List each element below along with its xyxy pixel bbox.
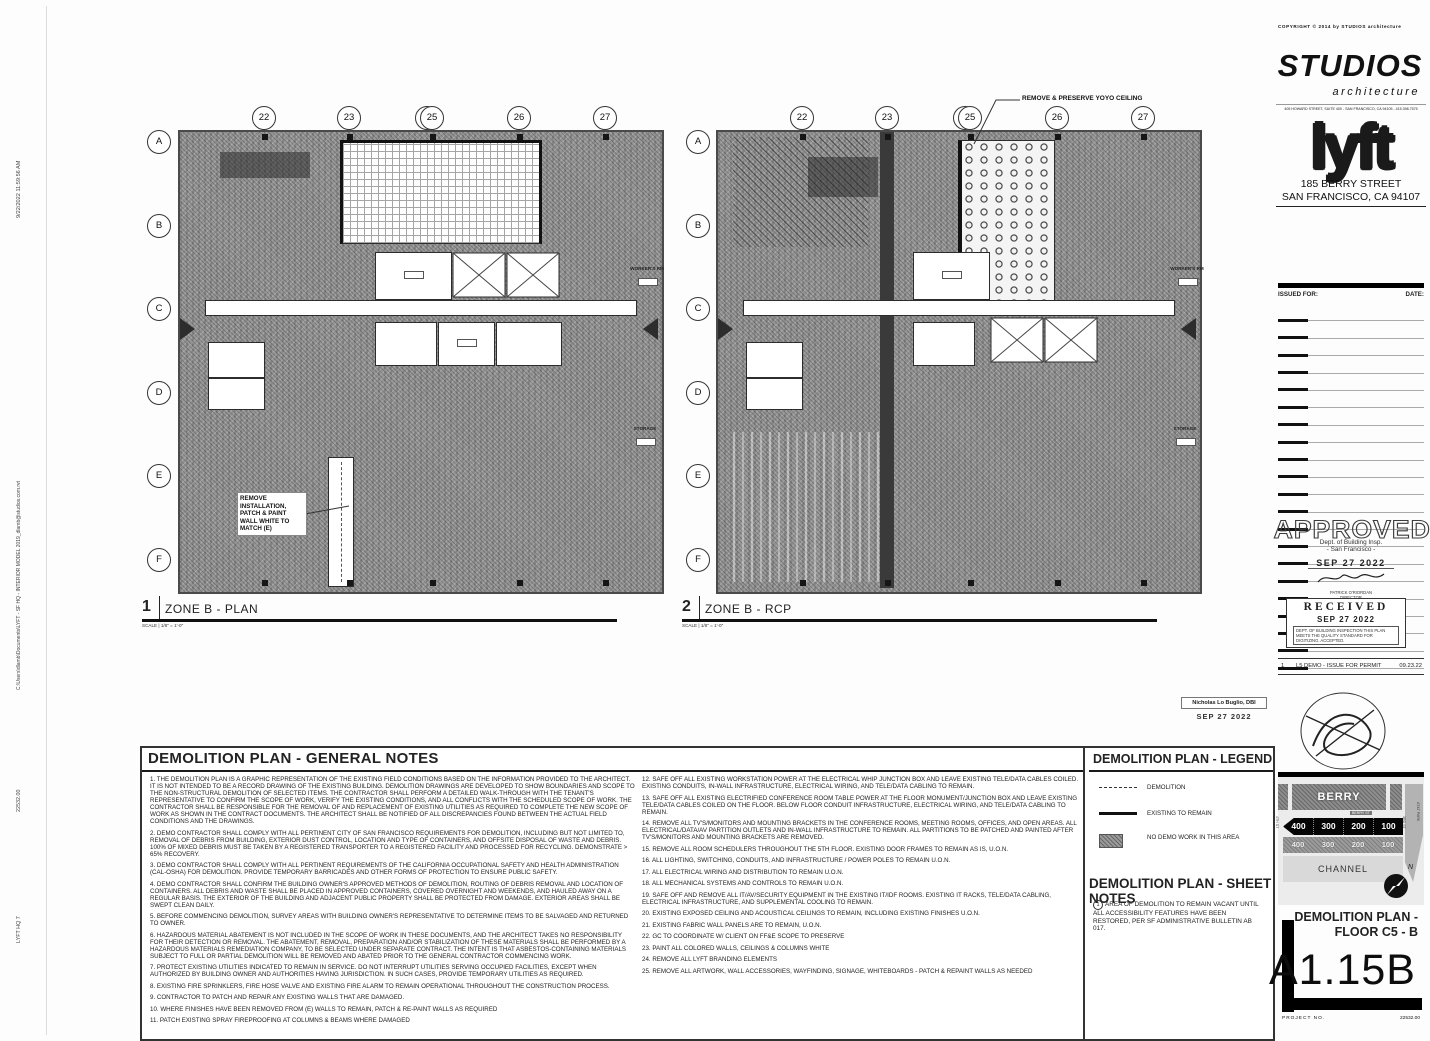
plan-scale: SCALE | 1/8" = 1'-0" [142, 623, 183, 628]
column-dot [1055, 134, 1061, 140]
grid-row-bubble: D [686, 381, 710, 405]
drawing-sheet: 9/22/2022 11:59:56 AM C:\Users\dlamb\Doc… [0, 0, 1430, 1041]
sheet-note-1: 1AREA OF DEMOLITION TO REMAIN VACANT UNT… [1093, 900, 1265, 933]
column-dot [1141, 580, 1147, 586]
block-number: 100 [1373, 818, 1403, 835]
column-dot [800, 134, 806, 140]
solid-line-symbol [1099, 812, 1137, 815]
elevator-bank [452, 252, 560, 298]
project-name-vertical: LYFT HQ 7 [16, 893, 22, 943]
sheet-title-line2: FLOOR C5 - B [1335, 925, 1418, 939]
grid-row-bubble: C [686, 297, 710, 321]
room-tag [404, 271, 424, 279]
column-dot [968, 580, 974, 586]
corridor [205, 300, 637, 316]
column-dot [603, 134, 609, 140]
issued-for-row [1278, 374, 1424, 391]
general-note: 18. ALL MECHANICAL SYSTEMS AND CONTROLS … [642, 880, 1080, 887]
column-dot [347, 134, 353, 140]
plan-dark-area [220, 152, 310, 178]
revision-row: 1 L5 DEMO - ISSUE FOR PERMIT 09.23.22 [1278, 658, 1424, 675]
revision-description: L5 DEMO - ISSUE FOR PERMIT [1296, 659, 1381, 674]
issued-for-header: ISSUED FOR: DATE: [1278, 291, 1424, 298]
lyft-logo: lyft [1276, 112, 1426, 183]
issued-for-label: ISSUED FOR: [1278, 291, 1318, 298]
rule [1089, 770, 1273, 772]
north-label: N [1408, 864, 1413, 871]
plan-number: 2 [682, 598, 691, 616]
side-room [746, 342, 803, 378]
sheet-title-line1: DEMOLITION PLAN - [1294, 910, 1418, 924]
general-note: 2. DEMO CONTRACTOR SHALL COMPLY WITH ALL… [150, 830, 636, 858]
column-dot [262, 134, 268, 140]
room-tag [1178, 278, 1198, 286]
general-note: 14. REMOVE ALL TV'S/MONITORS AND MOUNTIN… [642, 820, 1080, 841]
issued-for-row [1278, 426, 1424, 443]
general-note: 6. HAZARDOUS MATERIAL ABATEMENT IS NOT I… [150, 932, 636, 960]
core-room [496, 322, 562, 366]
block-number: 200 [1343, 837, 1373, 853]
block-number: 300 [1313, 818, 1343, 835]
map-block [1390, 784, 1402, 810]
grid-column-bubble: 22 [790, 106, 814, 130]
legend-title: DEMOLITION PLAN - LEGEND [1093, 752, 1272, 766]
block-number: 100 [1373, 837, 1403, 853]
general-notes-column-2: 12. SAFE OFF ALL EXISTING WORKSTATION PO… [642, 776, 1080, 979]
studios-logo-sub: architecture [1333, 86, 1420, 98]
plan-name: ZONE B - RCP [705, 602, 792, 616]
date-label: DATE: [1406, 291, 1424, 298]
block-number: 400 [1283, 818, 1313, 835]
general-note: 24. REMOVE ALL LYFT BRANDING ELEMENTS [642, 956, 1080, 963]
grid-row-bubble: F [686, 548, 710, 572]
divider [699, 596, 700, 620]
column-dot [347, 580, 353, 586]
general-note: 17. ALL ELECTRICAL WIRING AND DISTRIBUTI… [642, 869, 1080, 876]
grid-column-bubble: 23 [337, 106, 361, 130]
approved-city: - San Francisco - [1278, 546, 1424, 553]
general-note: 7. PROTECT EXISTING UTILITIES INDICATED … [150, 964, 636, 978]
general-note: 21. EXISTING FABRIC WALL PANELS ARE TO R… [642, 922, 1080, 929]
project-address-line2: SAN FRANCISCO, CA 94107 [1276, 191, 1426, 207]
annotation-yoyo-ceiling: REMOVE & PRESERVE YOYO CEILING [1022, 95, 1142, 102]
grid-row-bubble: E [147, 464, 171, 488]
column-dot [1055, 580, 1061, 586]
grid-column-bubble: 26 [507, 106, 531, 130]
grid-row-bubble: D [147, 381, 171, 405]
plan-dark-area [808, 157, 878, 197]
plan-name: ZONE B - PLAN [165, 602, 258, 616]
received-word: RECEIVED [1287, 601, 1405, 613]
core-room [375, 252, 452, 300]
studios-logo: STUDIOS [1276, 48, 1424, 84]
note-number-bubble: 1 [1093, 900, 1103, 910]
room-tag [457, 339, 477, 347]
grid-column-bubble: 27 [1131, 106, 1155, 130]
site-block-row-highlight: 400300200100 [1283, 818, 1403, 835]
grid-row-bubble: B [147, 214, 171, 238]
column-dot [262, 580, 268, 586]
received-date: SEP 27 2022 [1287, 615, 1405, 624]
fourth-st-label: 4TH ST [1275, 816, 1279, 828]
project-address-line1: 185 BERRY STREET [1276, 178, 1426, 190]
general-note: 13. SAFE OFF ALL EXISTING ELECTRIFIED CO… [642, 795, 1080, 816]
side-room [208, 342, 265, 378]
issued-for-row [1278, 356, 1424, 373]
third-st-label: 3RD ST [1402, 816, 1406, 829]
callout-storage: STORAGE [628, 426, 662, 432]
general-notes-title: DEMOLITION PLAN - GENERAL NOTES [148, 750, 439, 767]
site-block-row: 400300200100 [1283, 837, 1403, 853]
column-dot [885, 580, 891, 586]
rcp-plan-zone-b [716, 130, 1202, 594]
title-rule [142, 619, 617, 622]
plan-number: 1 [142, 598, 151, 616]
park-label: AT&T PARK [1416, 802, 1420, 821]
annotation-leader [968, 96, 1024, 148]
column-dot [885, 134, 891, 140]
column-dot [800, 580, 806, 586]
core-room [913, 252, 990, 300]
grid-row-bubble: B [686, 214, 710, 238]
title-rule [682, 619, 1157, 622]
annotation-remove-installation: REMOVE INSTALLATION, PATCH & PAINT WALL … [237, 492, 307, 536]
issued-for-row [1278, 321, 1424, 338]
copyright-line: COPYRIGHT © 2014 by STUDIOS architecture [1278, 24, 1426, 29]
plan-edge-marker [718, 318, 733, 340]
general-note: 9. CONTRACTOR TO PATCH AND REPAIR ANY EX… [150, 994, 636, 1001]
grid-row-bubble: A [147, 130, 171, 154]
vicinity-key-map: BERRY BERRY ST 400300200100 400300200100… [1278, 772, 1424, 905]
received-note: DEPT. OF BUILDING INSPECTION THIS PLAN M… [1293, 626, 1399, 645]
column-dot [1141, 134, 1147, 140]
general-note: 10. WHERE FINISHES HAVE BEEN REMOVED FRO… [150, 1006, 636, 1013]
side-room [208, 378, 265, 410]
legend-item-demolition: DEMOLITION [1099, 784, 1186, 791]
plot-timestamp: 9/22/2022 11:59:56 AM [16, 88, 22, 218]
plan-scale: SCALE | 1/8" = 1'-0" [682, 623, 723, 628]
received-stamp: RECEIVED SEP 27 2022 DEPT. OF BUILDING I… [1286, 598, 1406, 648]
plan-2-title: 2 ZONE B - RCP SCALE | 1/8" = 1'-0" [682, 598, 1157, 628]
callout-storage: STORAGE [1168, 426, 1202, 432]
core-room [913, 322, 975, 366]
project-no-value: 22532.00 [1400, 1016, 1420, 1021]
core-room [438, 322, 495, 366]
reviewer-name: Nicholas Lo Buglio, DBI [1181, 697, 1267, 709]
grid-column-bubble: 26 [1045, 106, 1069, 130]
issued-for-row [1278, 443, 1424, 460]
hatch-symbol [1099, 834, 1123, 848]
grid-column-bubble: 22 [252, 106, 276, 130]
issued-for-row [1278, 304, 1424, 321]
issued-for-row [1278, 478, 1424, 495]
plan-edge-marker [1181, 318, 1196, 340]
berry-street-label: BERRY [1292, 784, 1386, 810]
general-note: 19. SAFE OFF AND REMOVE ALL IT/AV/SECURI… [642, 892, 1080, 906]
room-tag [942, 271, 962, 279]
notes-panel: DEMOLITION PLAN - GENERAL NOTES 1. THE D… [140, 746, 1275, 1041]
striped-region [733, 432, 883, 582]
general-note: 12. SAFE OFF ALL EXISTING WORKSTATION PO… [642, 776, 1080, 790]
dbi-reviewer-stamp: Nicholas Lo Buglio, DBI SEP 27 2022 [1181, 697, 1267, 721]
dashed-line-symbol [1099, 787, 1137, 788]
approved-word: APPROVED [1274, 516, 1429, 545]
project-no-label: PROJECT NO. [1282, 1016, 1325, 1021]
annotation-leader [304, 500, 352, 520]
project-number-vertical: 22532.00 [16, 752, 22, 812]
issued-for-row [1278, 339, 1424, 356]
room-tag [1176, 438, 1196, 446]
general-note: 20. EXISTING EXPOSED CEILING AND ACOUSTI… [642, 910, 1080, 917]
reviewer-date: SEP 27 2022 [1181, 712, 1267, 721]
grid-column-bubble: 23 [875, 106, 899, 130]
revision-number: 1 [1281, 659, 1284, 674]
legend-item-existing: EXISTING TO REMAIN [1099, 810, 1212, 817]
divider [1083, 748, 1085, 1039]
core-room [375, 322, 437, 366]
general-note: 5. BEFORE COMMENCING DEMOLITION, SURVEY … [150, 913, 636, 927]
column-dot [430, 580, 436, 586]
general-note: 16. ALL LIGHTING, SWITCHING, CONDUITS, A… [642, 857, 1080, 864]
grid-column-bubble: 27 [593, 106, 617, 130]
grid-row-bubble: F [147, 548, 171, 572]
rule [142, 770, 1083, 772]
plan-1-title: 1 ZONE B - PLAN SCALE | 1/8" = 1'-0" [142, 598, 617, 628]
corridor [743, 300, 1175, 316]
column-dot [430, 134, 436, 140]
side-room [746, 378, 803, 410]
section-bar [1278, 772, 1424, 777]
column-dot [517, 134, 523, 140]
revision-date: 09.23.22 [1399, 659, 1422, 674]
general-note: 25. REMOVE ALL ARTWORK, WALL ACCESSORIES… [642, 968, 1080, 975]
grid-column-bubble: 25 [420, 106, 444, 130]
room-tag [636, 438, 656, 446]
approved-stamp: APPROVED Dept. of Building Insp. - San F… [1278, 516, 1424, 605]
issued-for-row [1278, 391, 1424, 408]
approved-date: SEP 27 2022 [1308, 558, 1393, 569]
map-block [1278, 784, 1288, 810]
director-signature [1316, 571, 1386, 585]
general-note: 23. PAINT ALL COLORED WALLS, CEILINGS & … [642, 945, 1080, 952]
elevator-bank [990, 317, 1098, 363]
block-number: 300 [1313, 837, 1343, 853]
architect-seal [1288, 686, 1398, 776]
general-notes-column-1: 1. THE DEMOLITION PLAN IS A GRAPHIC REPR… [150, 776, 636, 1029]
general-note: 1. THE DEMOLITION PLAN IS A GRAPHIC REPR… [150, 776, 636, 825]
issued-for-row [1278, 495, 1424, 512]
issued-for-row [1278, 408, 1424, 425]
berry-st-small-label: BERRY ST [1350, 811, 1372, 815]
plan-edge-marker [180, 318, 195, 340]
plan-edge-marker [643, 318, 658, 340]
demolition-dashed-line [341, 462, 342, 582]
general-note: 22. GC TO COORDINATE W/ CLIENT ON FF&E S… [642, 933, 1080, 940]
north-arrow [1382, 872, 1410, 900]
sheet-margin-line [46, 6, 47, 1035]
column-dot [517, 580, 523, 586]
issued-for-row [1278, 461, 1424, 478]
section-bar [1278, 283, 1424, 288]
legend-item-no-demo: NO DEMO WORK IN THIS AREA [1099, 834, 1239, 850]
demo-wall-corridor [328, 457, 354, 587]
sheet-corner-bar-horizontal [1282, 998, 1422, 1010]
grid-row-bubble: A [686, 130, 710, 154]
general-note: 8. EXISTING FIRE SPRINKLERS, FIRE HOSE V… [150, 983, 636, 990]
general-note: 3. DEMO CONTRACTOR SHALL COMPLY WITH ALL… [150, 862, 636, 876]
grid-row-bubble: C [147, 297, 171, 321]
callout-workers-rm: WORKER'S RM [1170, 266, 1204, 272]
reception-ceiling-grid [340, 140, 542, 244]
sheet-number: A1.15B [1269, 946, 1416, 995]
grid-row-bubble: E [686, 464, 710, 488]
general-note: 11. PATCH EXISTING SPRAY FIREPROOFING AT… [150, 1017, 636, 1024]
divider [159, 596, 160, 620]
studios-address: 405 HOWARD STREET, SUITE 400 - SAN FRANC… [1276, 104, 1426, 111]
callout-workers-rm: WORKER'S RM [630, 266, 664, 272]
room-tag [638, 278, 658, 286]
general-note: 4. DEMO CONTRACTOR SHALL CONFIRM THE BUI… [150, 881, 636, 909]
general-note: 15. REMOVE ALL ROOM SCHEDULERS THROUGHOU… [642, 846, 1080, 853]
title-block: COPYRIGHT © 2014 by STUDIOS architecture… [1276, 0, 1426, 1041]
block-number: 400 [1283, 837, 1313, 853]
column-dot [603, 580, 609, 586]
file-path: C:\Users\dlamb\Documents\LYFT - SF HQ - … [16, 290, 22, 690]
block-number: 200 [1343, 818, 1373, 835]
